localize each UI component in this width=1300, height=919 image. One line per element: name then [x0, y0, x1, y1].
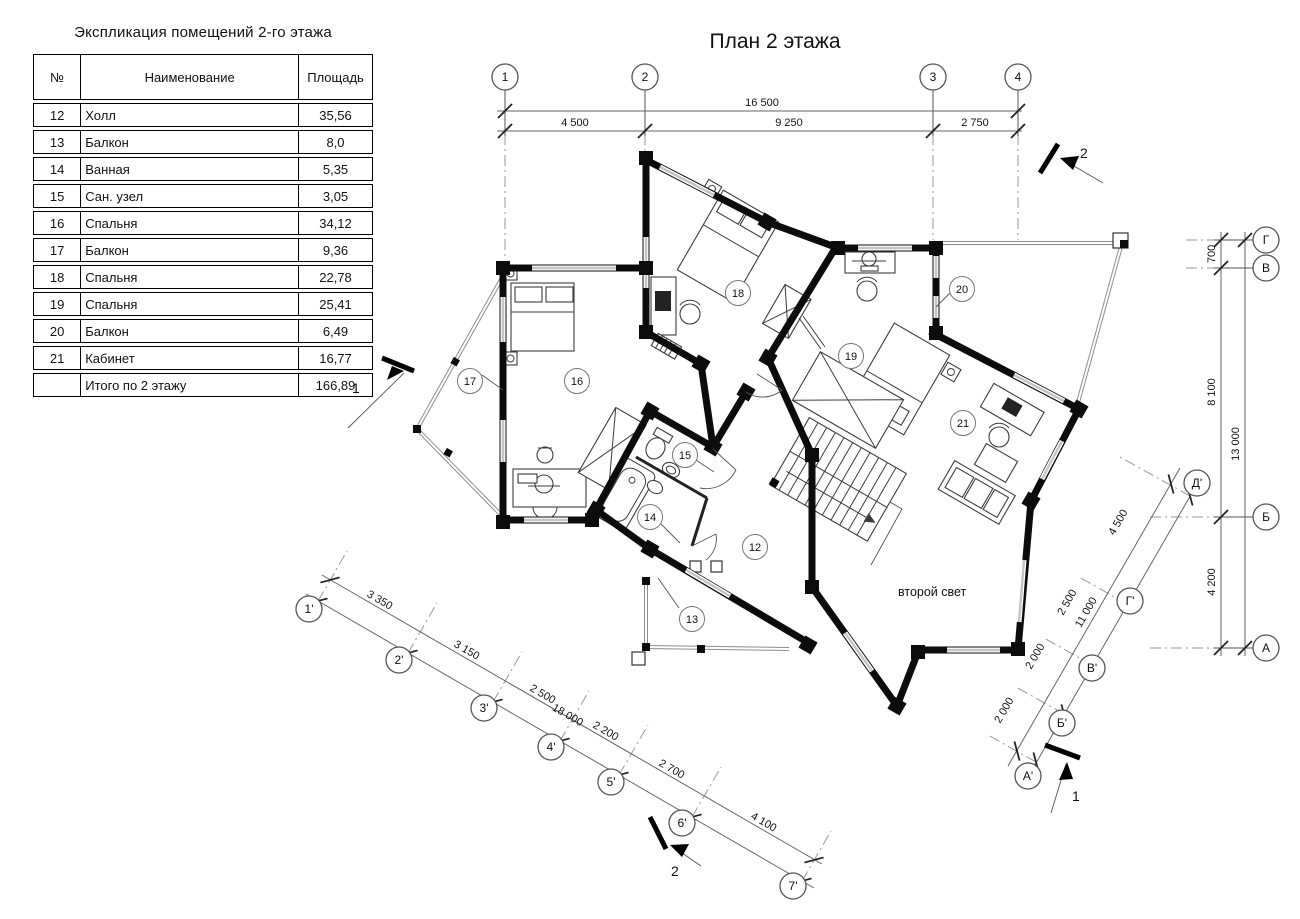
- dim-label: 2 000: [992, 696, 1016, 726]
- dim-label: 13 000: [1230, 427, 1242, 461]
- axis-label: Г': [1126, 594, 1135, 608]
- dim-label: 2 750: [961, 117, 989, 129]
- axis-label: А': [1023, 769, 1033, 783]
- dim-label: 2 700: [657, 757, 687, 781]
- room-label: 16: [571, 376, 583, 388]
- toilet: [642, 427, 673, 462]
- axis-label: Д': [1192, 476, 1202, 490]
- dim-label: 2 200: [591, 719, 621, 743]
- room-label: 18: [732, 288, 744, 300]
- dim-label: 4 500: [561, 117, 589, 129]
- floor-plan-svg: 16 500 4 500 9 250 2 750 1 2 3 4 700 8: [0, 0, 1300, 919]
- dim-label: 3 350: [365, 588, 395, 612]
- axis-label: 1: [502, 70, 509, 84]
- dim-label: 8 100: [1206, 378, 1218, 406]
- axis-label: В': [1087, 661, 1097, 675]
- axis-label: 1': [305, 602, 314, 616]
- dim-label: 11 000: [1073, 595, 1100, 629]
- axis-label: 5': [607, 775, 616, 789]
- drawing-sheet: Экспликация помещений 2-го этажа № Наиме…: [0, 0, 1300, 919]
- axis-label: В: [1262, 261, 1270, 275]
- axis-label: 3: [930, 70, 937, 84]
- dimension-chain-bottom-right: 2 000 2 000 2 500 4 500 11 000 А' Б' В' …: [992, 468, 1210, 789]
- dim-label: 4 200: [1206, 568, 1218, 596]
- dim-label: 2 500: [1055, 588, 1079, 618]
- room-label: 21: [957, 418, 969, 430]
- axis-label: 3': [480, 701, 489, 715]
- room-label: 14: [644, 512, 656, 524]
- room-label: 19: [845, 351, 857, 363]
- chair: [989, 427, 1009, 447]
- axis-label: 2: [642, 70, 649, 84]
- axis-label: А: [1262, 641, 1270, 655]
- dimension-chain-bottom-left: 3 350 3 150 2 500 2 200 2 700 4 100 18 0…: [296, 570, 824, 899]
- section-label: 1: [352, 380, 360, 396]
- desk: [513, 447, 586, 519]
- desk: [845, 252, 895, 301]
- bed: [504, 267, 574, 365]
- room-label: 20: [956, 284, 968, 296]
- desk: [980, 383, 1044, 435]
- axis-label: Б: [1262, 510, 1270, 524]
- dim-label: 18 000: [550, 702, 585, 729]
- dimension-chain-top: 16 500 4 500 9 250 2 750 1 2 3 4: [492, 64, 1031, 138]
- section-label: 2: [671, 863, 679, 879]
- axis-label: 4': [547, 740, 556, 754]
- room-label: 12: [749, 542, 761, 554]
- axis-label: Б': [1057, 716, 1067, 730]
- axis-label: Г: [1263, 233, 1270, 247]
- axis-label: 4: [1015, 70, 1022, 84]
- section-label: 1: [1072, 788, 1080, 804]
- dim-label: 9 250: [775, 117, 803, 129]
- axis-label: 2': [395, 653, 404, 667]
- dim-label: 4 100: [749, 810, 779, 834]
- room-label: 15: [679, 450, 691, 462]
- section-label: 2: [1080, 145, 1088, 161]
- axis-label: 7': [789, 879, 798, 893]
- room-label: 17: [464, 376, 476, 388]
- dim-label: 2 000: [1023, 642, 1047, 672]
- dim-label: 16 500: [745, 97, 779, 109]
- dimension-chain-right: 700 8 100 4 200 13 000 Г В Б А: [1206, 227, 1279, 661]
- dim-label: 4 500: [1106, 508, 1130, 538]
- desk: [651, 277, 700, 335]
- room-label: 13: [686, 614, 698, 626]
- axis-label: 6': [678, 816, 687, 830]
- second-light-note: второй свет: [898, 585, 967, 599]
- dim-label: 700: [1206, 245, 1218, 263]
